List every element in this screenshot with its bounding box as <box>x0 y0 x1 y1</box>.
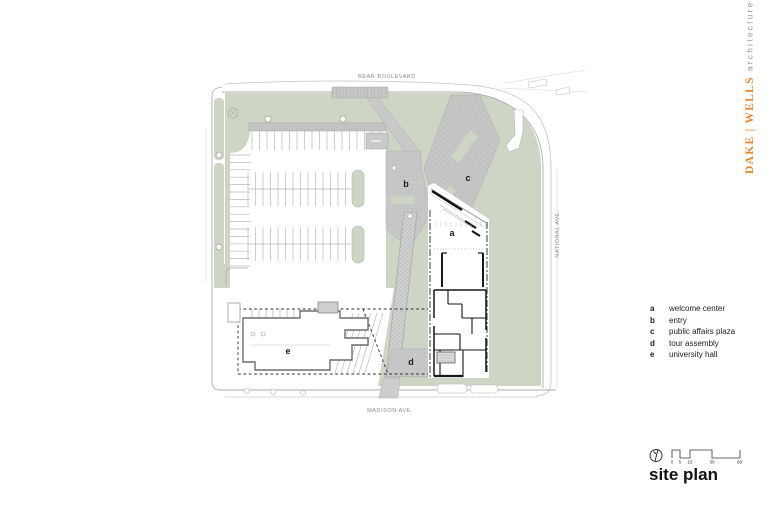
street-label-top: BEAR BOULEVARD <box>358 74 416 80</box>
legend-row: a welcome center <box>650 303 735 315</box>
street-label-bottom: MADISON AVE. <box>367 408 413 414</box>
brand-name: DAKE | WELLS <box>744 76 756 174</box>
legend: a welcome center b entry c public affair… <box>650 303 735 361</box>
legend-key: c <box>650 326 669 338</box>
scale-tick: 60' <box>737 460 743 465</box>
legend-label: tour assembly <box>669 338 719 350</box>
legend-row: b entry <box>650 315 735 327</box>
north-arrow-icon <box>650 450 662 462</box>
site-plan-drawing: BEAR BOULEVARD NATIONAL AVE. MADISON AVE… <box>0 0 780 505</box>
legend-key: e <box>650 349 669 361</box>
scale-tick: 5 <box>679 460 682 465</box>
marker-c: c <box>465 173 470 183</box>
page-title: site plan <box>649 465 718 485</box>
brand-suffix: architecture <box>746 1 755 77</box>
sheet: BEAR BOULEVARD NATIONAL AVE. MADISON AVE… <box>0 0 780 505</box>
legend-row: e university hall <box>650 349 735 361</box>
brand-block: DAKE | WELLS architecture <box>744 26 756 174</box>
legend-label: university hall <box>669 349 717 361</box>
legend-label: entry <box>669 315 687 327</box>
legend-row: d tour assembly <box>650 338 735 350</box>
legend-key: a <box>650 303 669 315</box>
marker-e: e <box>285 346 290 356</box>
crosswalk <box>332 87 388 98</box>
street-label-right: NATIONAL AVE. <box>555 210 561 257</box>
marker-d: d <box>408 357 414 367</box>
legend-label: welcome center <box>669 303 725 315</box>
scale-tick: 0 <box>671 460 674 465</box>
legend-key: b <box>650 315 669 327</box>
legend-key: d <box>650 338 669 350</box>
scale-tick: 30 <box>709 460 715 465</box>
marker-b: b <box>403 179 409 189</box>
legend-row: c public affairs plaza <box>650 326 735 338</box>
legend-label: public affairs plaza <box>669 326 735 338</box>
scale-tick: 15 <box>687 460 693 465</box>
